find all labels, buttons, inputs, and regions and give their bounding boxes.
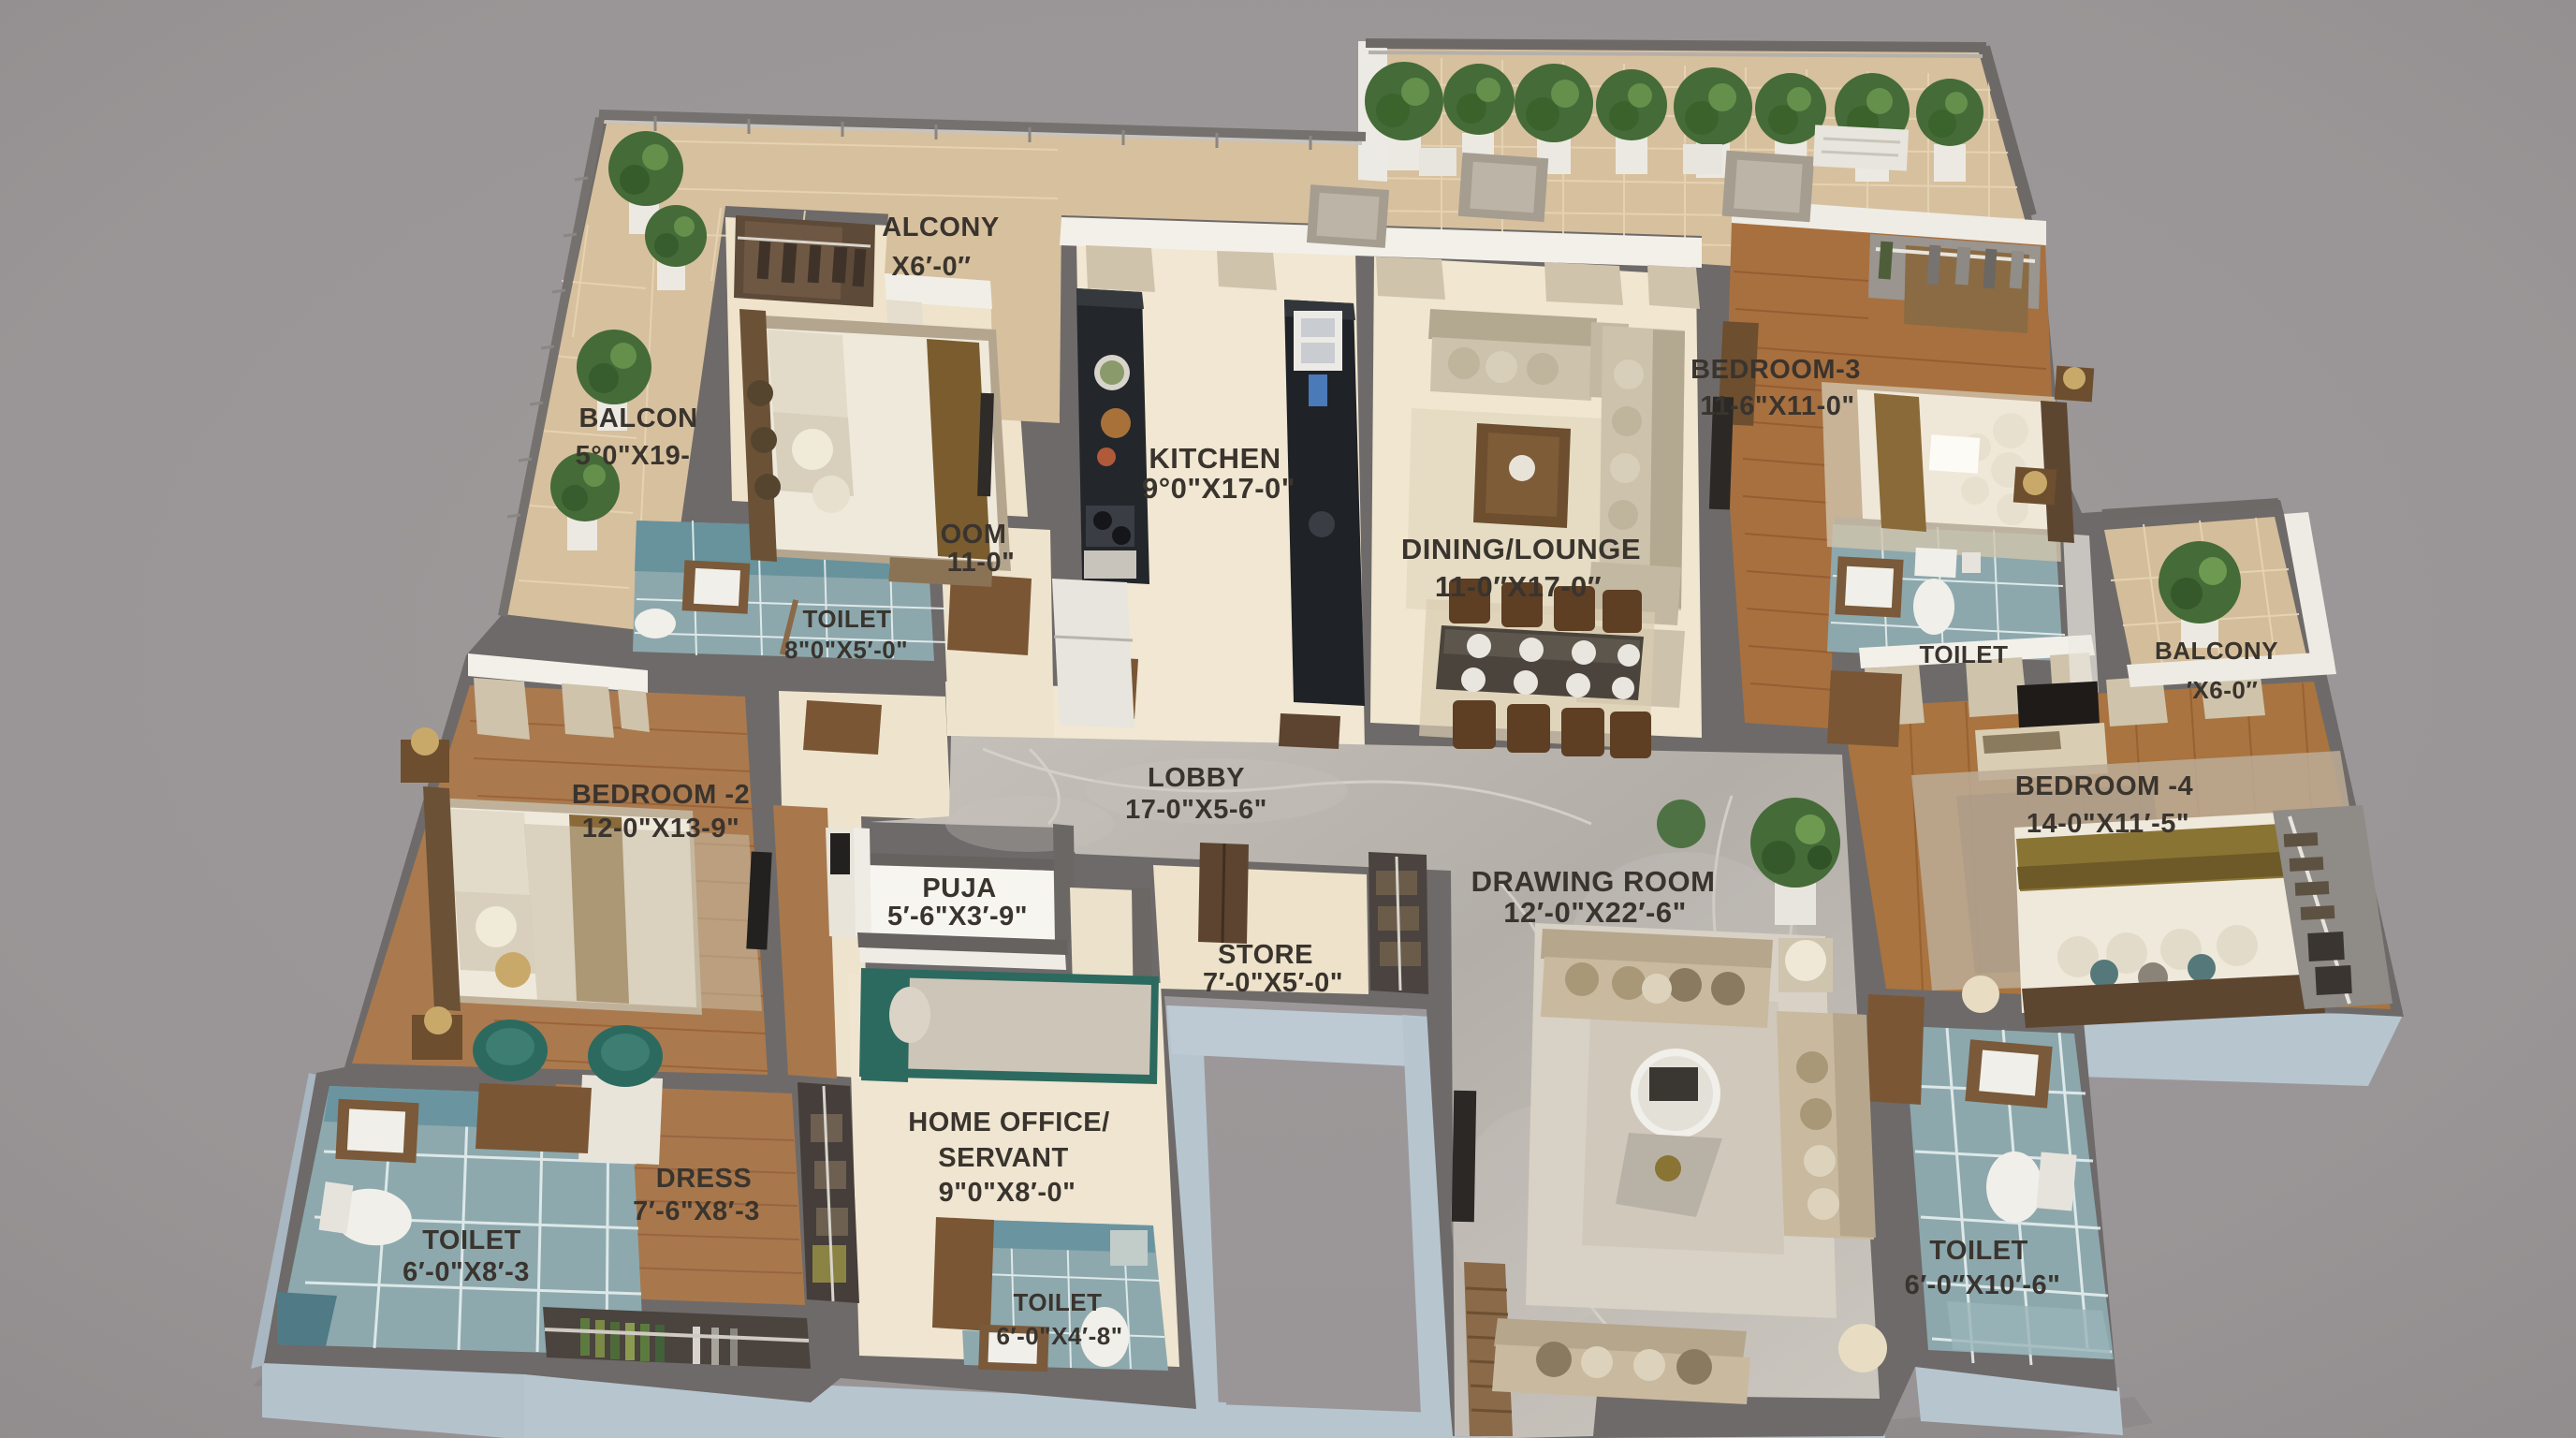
svg-text:9°0"X17-0": 9°0"X17-0" <box>1142 472 1295 505</box>
svg-text:5′-6"X3′-9": 5′-6"X3′-9" <box>887 902 1028 932</box>
svg-text:TOILET: TOILET <box>803 605 892 633</box>
svg-text:HOME OFFICE/: HOME OFFICE/ <box>908 1108 1109 1137</box>
svg-text:5°0"X19-: 5°0"X19- <box>576 441 691 471</box>
svg-text:SERVANT: SERVANT <box>938 1143 1068 1173</box>
svg-text:′X6-0″: ′X6-0″ <box>2187 676 2259 704</box>
svg-text:PUJA: PUJA <box>922 873 996 903</box>
svg-text:12′-0"X22′-6": 12′-0"X22′-6" <box>1503 896 1687 929</box>
svg-text:ALCONY: ALCONY <box>882 213 999 242</box>
svg-text:7′-0"X5′-0": 7′-0"X5′-0" <box>1203 968 1343 998</box>
svg-text:12-0"X13-9": 12-0"X13-9" <box>582 814 739 844</box>
svg-text:9"0"X8′-0": 9"0"X8′-0" <box>939 1178 1076 1208</box>
svg-text:TOILET: TOILET <box>422 1225 521 1255</box>
svg-text:11-0″X17-0″: 11-0″X17-0″ <box>1435 570 1602 603</box>
svg-text:LOBBY: LOBBY <box>1148 763 1245 793</box>
svg-text:DRESS: DRESS <box>656 1164 752 1194</box>
svg-text:11-0": 11-0" <box>947 548 1016 578</box>
svg-text:KITCHEN: KITCHEN <box>1149 442 1281 475</box>
svg-text:DINING/LOUNGE: DINING/LOUNGE <box>1401 533 1641 565</box>
svg-text:7′-6"X8′-3: 7′-6"X8′-3 <box>633 1196 760 1226</box>
svg-text:TOILET: TOILET <box>1014 1288 1103 1316</box>
svg-text:BALCONY: BALCONY <box>2155 637 2278 665</box>
svg-text:X6′-0″: X6′-0″ <box>891 252 971 282</box>
svg-text:6′-0"X8′-3: 6′-0"X8′-3 <box>402 1257 530 1287</box>
svg-text:14-0"X11′-5": 14-0"X11′-5" <box>2027 809 2189 839</box>
svg-text:BEDROOM-3: BEDROOM-3 <box>1690 355 1861 385</box>
svg-text:DRAWING ROOM: DRAWING ROOM <box>1471 865 1716 898</box>
svg-text:TOILET: TOILET <box>1920 640 2009 668</box>
svg-text:11-6"X11-0": 11-6"X11-0" <box>1700 391 1854 421</box>
svg-text:BALCON: BALCON <box>578 404 697 433</box>
svg-text:TOILET: TOILET <box>1929 1236 2028 1266</box>
svg-text:17-0"X5-6": 17-0"X5-6" <box>1125 795 1267 825</box>
svg-text:BEDROOM -2: BEDROOM -2 <box>572 780 750 810</box>
svg-text:6′-0"X4′-8": 6′-0"X4′-8" <box>996 1322 1122 1350</box>
svg-text:6′-0″X10′-6": 6′-0″X10′-6" <box>1905 1270 2061 1300</box>
svg-text:OOM: OOM <box>941 520 1007 550</box>
svg-text:8"0"X5′-0": 8"0"X5′-0" <box>784 636 908 664</box>
svg-text:BEDROOM -4: BEDROOM -4 <box>2015 771 2193 801</box>
svg-text:STORE: STORE <box>1218 940 1313 970</box>
